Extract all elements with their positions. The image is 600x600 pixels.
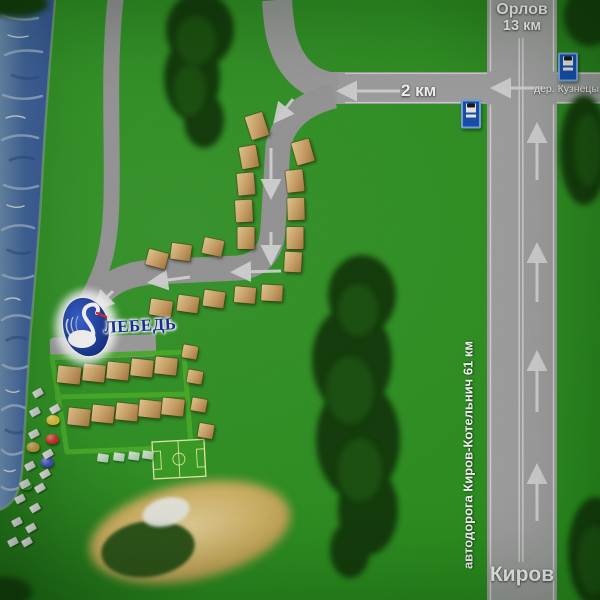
cabin (287, 198, 305, 221)
access-road-distance-label: 2 км (401, 81, 436, 101)
village-label: дер. Кузнецы (534, 83, 599, 95)
bench-table (142, 450, 154, 459)
destination-name: Орлов (487, 1, 557, 18)
cabin (202, 290, 225, 309)
cabin (237, 172, 256, 195)
destination-label-kirov: Киров (487, 563, 557, 587)
resort-logo: ЛЕБЕДЬ (40, 283, 190, 368)
bus-stop-sign (558, 53, 578, 82)
sand-beach (80, 464, 300, 600)
tent (47, 415, 60, 425)
shed (186, 369, 203, 384)
destination-label-orlov: Орлов 13 км (487, 1, 557, 35)
bench-table (113, 452, 125, 461)
shed (197, 423, 214, 439)
football-field (152, 439, 206, 479)
cabin (285, 169, 304, 193)
cabin (287, 227, 304, 249)
cabin (67, 407, 91, 426)
cabin (235, 200, 253, 223)
cabin (161, 397, 185, 416)
shore-road (79, 0, 116, 314)
cabin (284, 252, 302, 273)
cabin (57, 365, 82, 384)
route-arrow (236, 271, 281, 272)
tent (27, 442, 40, 452)
cabin (170, 243, 192, 262)
bus-icon (467, 104, 475, 108)
north-branch-road (277, 0, 338, 88)
highway-name-label: автодорога Киров-Котельнич 61 км (461, 315, 476, 595)
cabin (261, 284, 283, 301)
cabin (238, 227, 255, 249)
cabin (234, 286, 256, 304)
cabin (239, 145, 260, 170)
map-canvas: ЛЕБЕДЬ Орлов 13 км 2 км дер. Кузнецы авт… (0, 0, 600, 600)
cabin (138, 399, 162, 418)
cabin (91, 404, 115, 423)
tent (46, 434, 59, 444)
bench-table (128, 451, 140, 460)
shed (190, 397, 207, 412)
cabin (115, 402, 139, 421)
destination-distance: 13 км (487, 18, 557, 35)
bus-stop-sign (461, 100, 481, 129)
bench-table (97, 453, 109, 462)
resort-name: ЛЕБЕДЬ (104, 314, 177, 338)
bus-icon (564, 57, 572, 61)
